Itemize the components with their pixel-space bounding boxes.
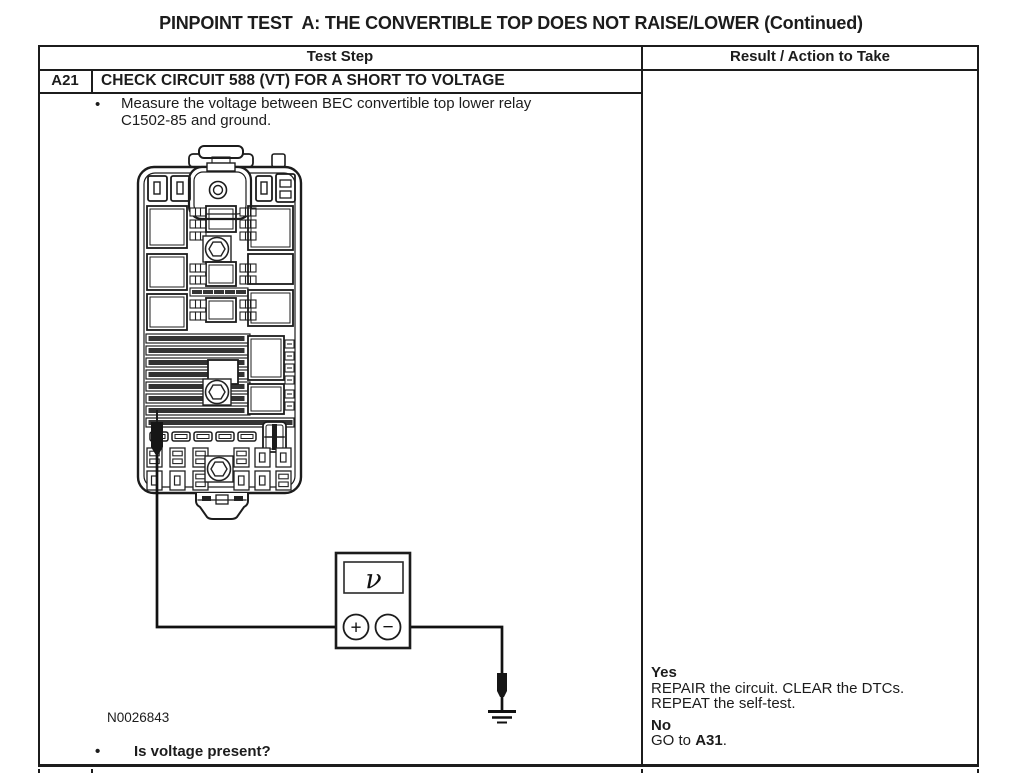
instruction-item: • Measure the voltage between BEC conver… [95, 96, 575, 129]
col-header-test-step: Test Step [38, 48, 642, 65]
page-title: PINPOINT TEST A: THE CONVERTIBLE TOP DOE… [0, 13, 1022, 34]
svg-text:+: + [350, 618, 361, 639]
next-row-column-divider [641, 769, 643, 773]
step-row-divider [38, 92, 643, 94]
result-action-cell: Yes REPAIR the circuit. CLEAR the DTCs. … [651, 665, 971, 749]
next-row-border-right [977, 769, 979, 773]
measurement-diagram: ν + − [100, 142, 560, 736]
result-no-step-link: A31 [695, 732, 723, 749]
result-no-prefix: GO to [651, 732, 695, 749]
result-yes-line2: REPEAT the self-test. [651, 696, 971, 712]
table-border-left [38, 45, 40, 766]
result-no-suffix: . [723, 732, 727, 749]
result-no-action: GO to A31. [651, 733, 971, 749]
plus-terminal-icon: + [344, 615, 369, 640]
instruction-text: Measure the voltage between BEC converti… [121, 96, 571, 129]
table-border-right [977, 45, 979, 766]
table-border-bottom [38, 764, 979, 767]
next-row-border-left [38, 769, 40, 773]
voltmeter-icon: ν + − [336, 553, 410, 648]
document-page: PINPOINT TEST A: THE CONVERTIBLE TOP DOE… [0, 0, 1022, 773]
question-text: Is voltage present? [134, 743, 271, 760]
svg-text:−: − [382, 617, 393, 638]
bullet-icon: • [95, 743, 134, 760]
table-column-divider [641, 45, 643, 766]
result-yes-label: Yes [651, 665, 971, 681]
bullet-icon: • [95, 96, 121, 129]
fuse-box-icon [138, 146, 301, 519]
table-header-divider [38, 69, 979, 71]
step-title: CHECK CIRCUIT 588 (VT) FOR A SHORT TO VO… [101, 72, 505, 90]
question-item: • Is voltage present? [95, 743, 495, 760]
table-border-top [38, 45, 979, 47]
result-yes-line1: REPAIR the circuit. CLEAR the DTCs. [651, 681, 971, 697]
col-header-result-action: Result / Action to Take [642, 48, 978, 65]
result-no-label: No [651, 718, 971, 734]
step-id-cell: A21 [38, 72, 92, 89]
next-row-id-divider [91, 769, 93, 773]
voltmeter-display-symbol: ν [365, 564, 381, 595]
minus-terminal-icon: − [376, 615, 401, 640]
figure-id-label: N0026843 [107, 710, 169, 725]
